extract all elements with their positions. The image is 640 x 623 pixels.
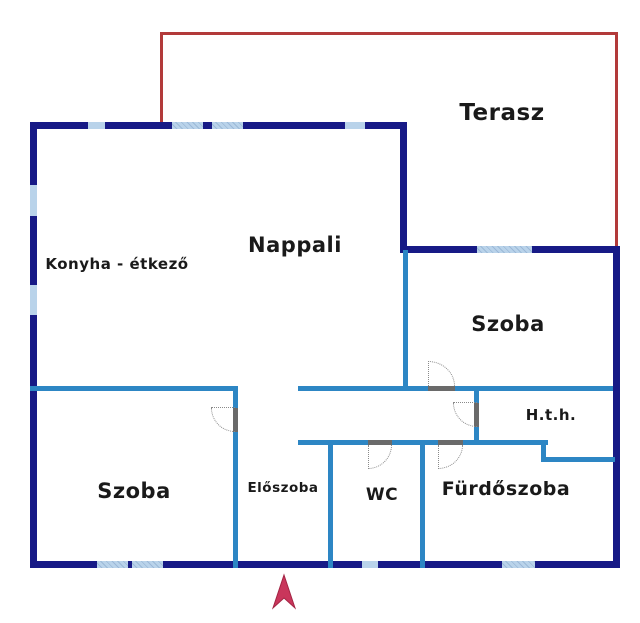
floorplan-canvas: Terasz Nappali Konyha - étkező Szoba H.t… bbox=[0, 0, 640, 623]
entrance-arrow-icon bbox=[0, 0, 640, 623]
